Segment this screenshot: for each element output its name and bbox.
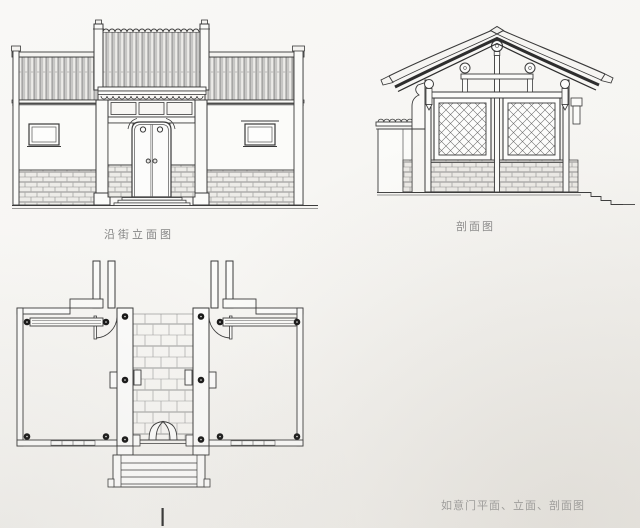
plan-drawing (5, 258, 315, 528)
left-window (27, 124, 61, 147)
brick-sill-wall (431, 160, 578, 192)
street-elevation-drawing (10, 12, 320, 212)
section-caption: 剖面图 (456, 220, 495, 234)
adjoining-wall (376, 119, 414, 192)
gate (93, 20, 210, 206)
gate-frieze (108, 100, 195, 123)
elevation-caption: 沿街立面图 (104, 228, 174, 242)
street-steps (583, 193, 623, 205)
ground-and-steps (377, 193, 635, 205)
scanned-architectural-page: 沿街立面图 剖面图 如意门平面、立面、剖面图 (0, 0, 640, 528)
top-walls (70, 261, 256, 308)
door-handle-left (146, 159, 150, 163)
left-wall (12, 46, 100, 205)
entrance-steps (108, 455, 210, 487)
gate-door (128, 119, 175, 198)
gate-steps (114, 198, 190, 206)
door-handle-right (153, 159, 157, 163)
section-drawing (365, 2, 635, 217)
figure-title-caption: 如意门平面、立面、剖面图 (441, 499, 585, 513)
centerline-mark (162, 508, 164, 526)
ground-line (12, 206, 318, 209)
plan-window (51, 441, 275, 445)
gate-roof (98, 29, 206, 99)
right-window (241, 121, 279, 147)
right-wall (204, 46, 305, 205)
